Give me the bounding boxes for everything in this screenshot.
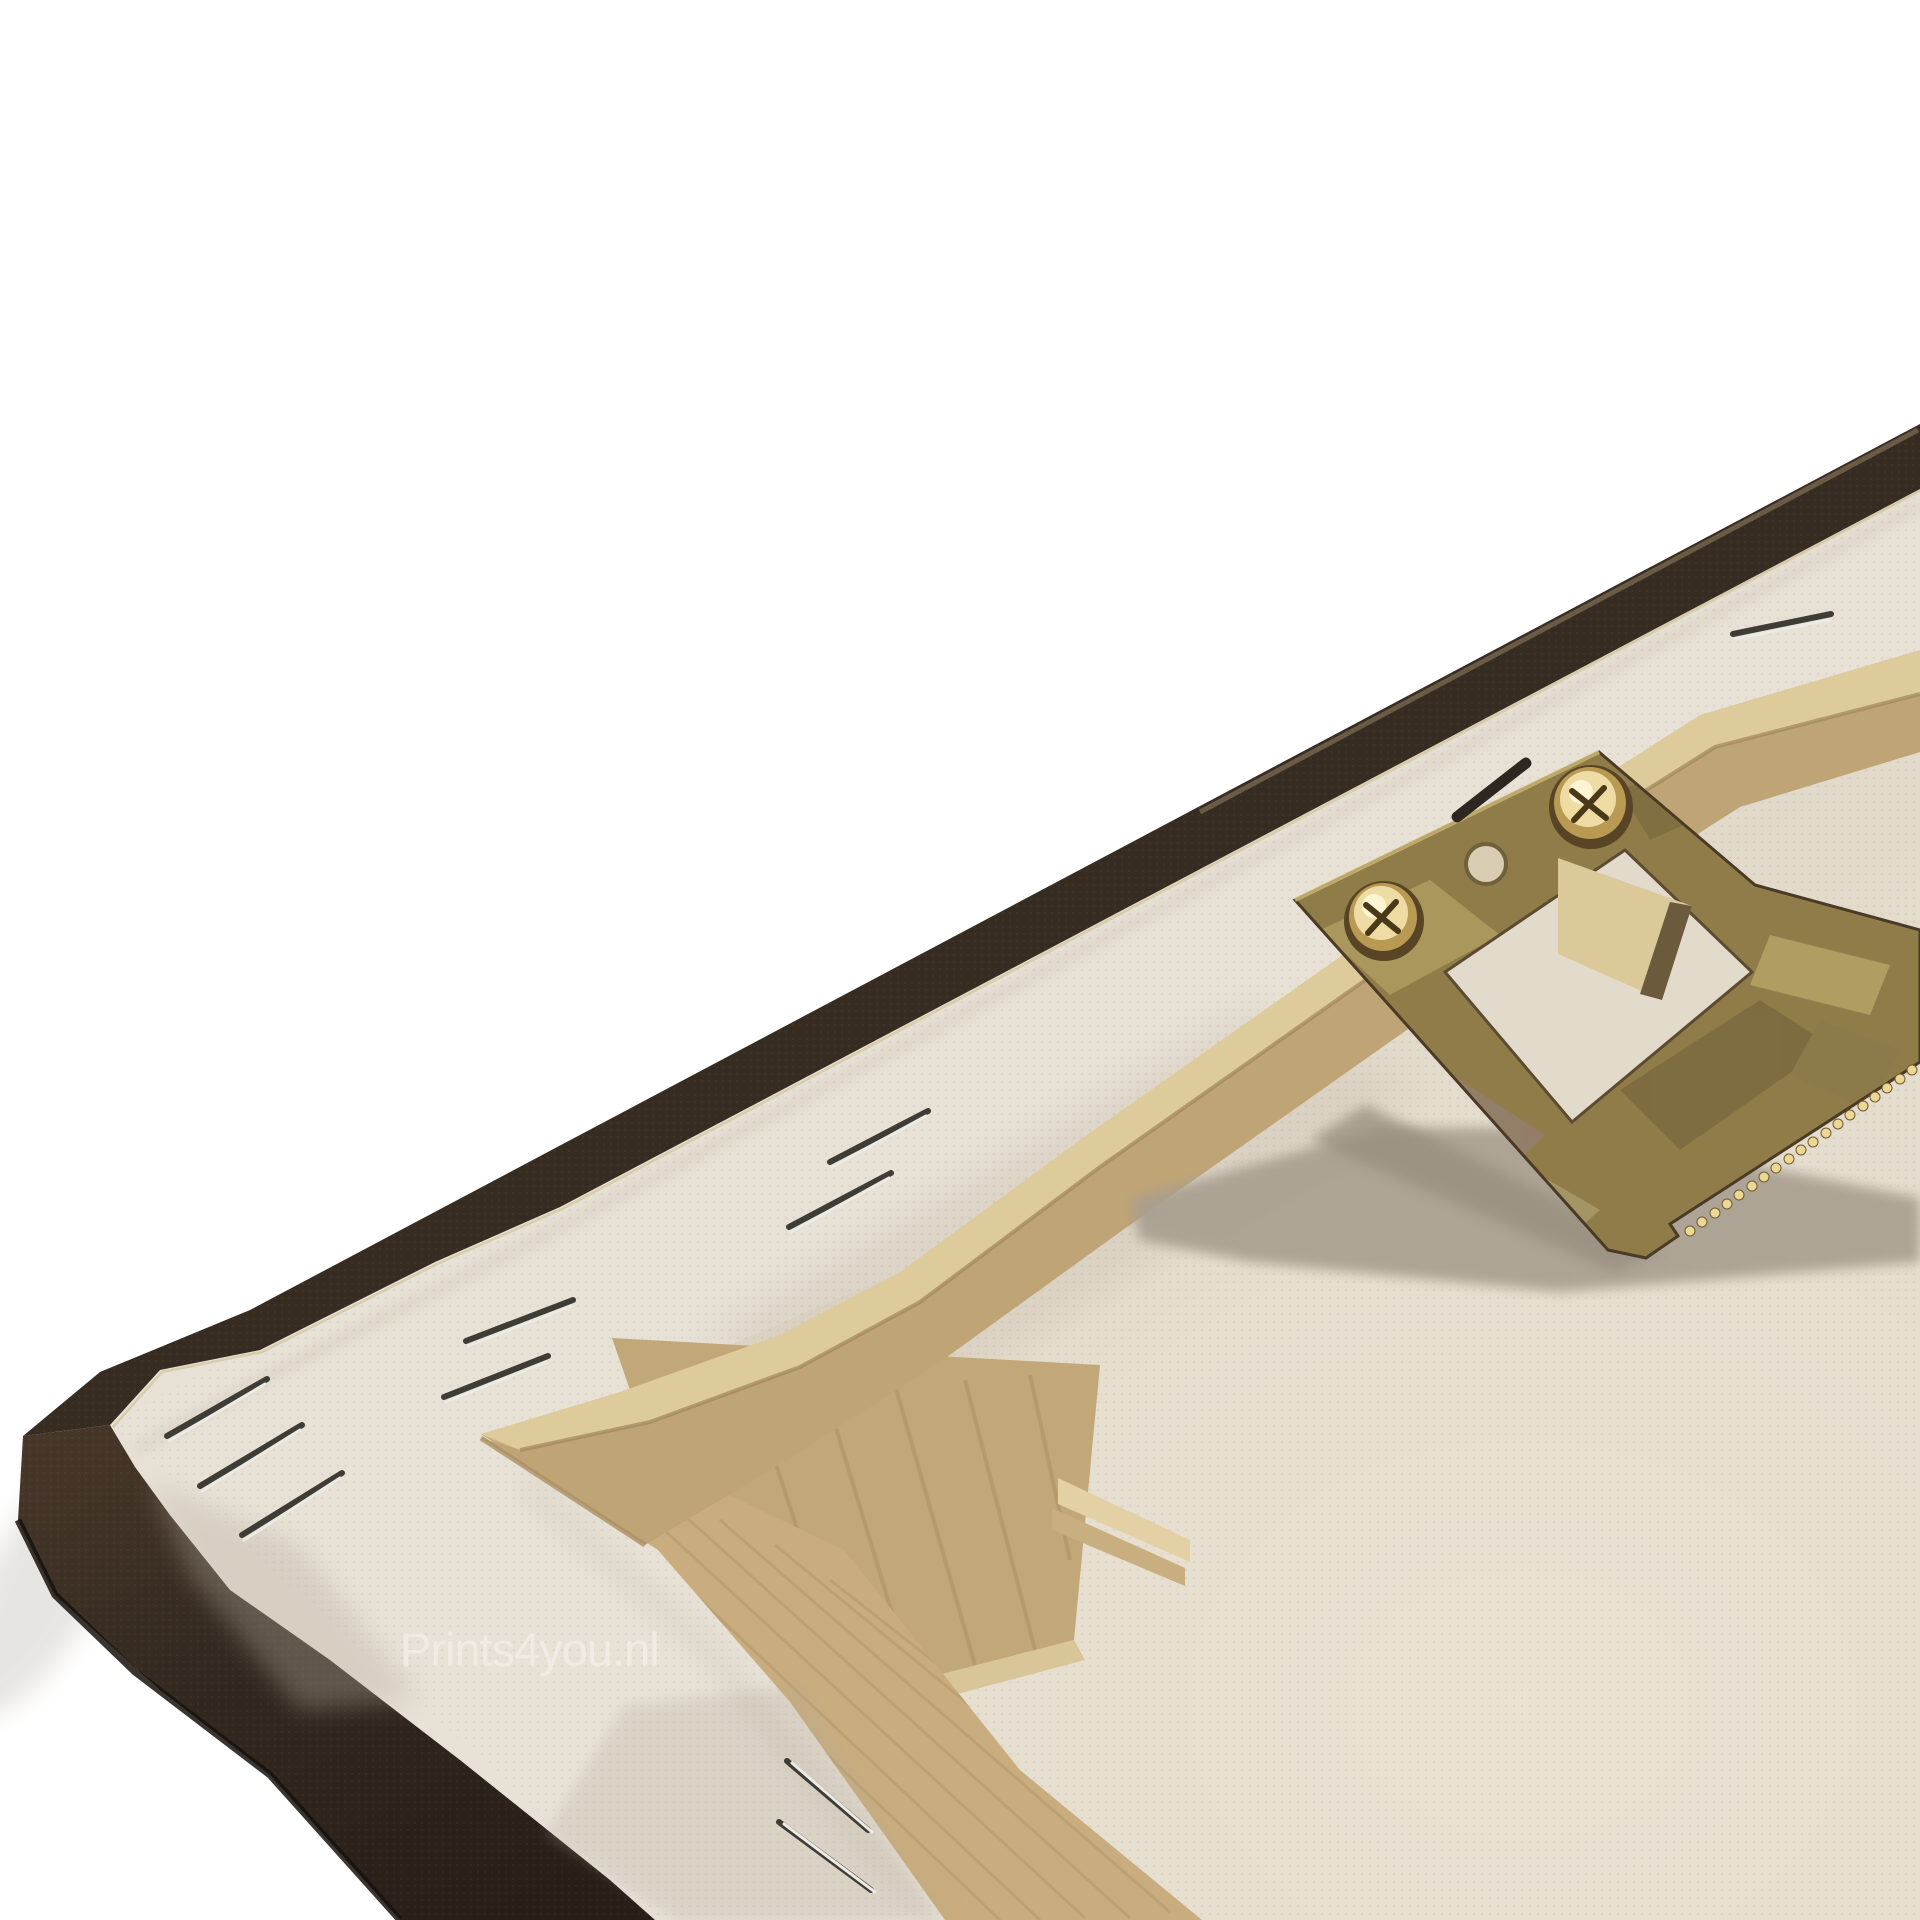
svg-text:Prints4you.nl: Prints4you.nl (400, 1623, 659, 1676)
